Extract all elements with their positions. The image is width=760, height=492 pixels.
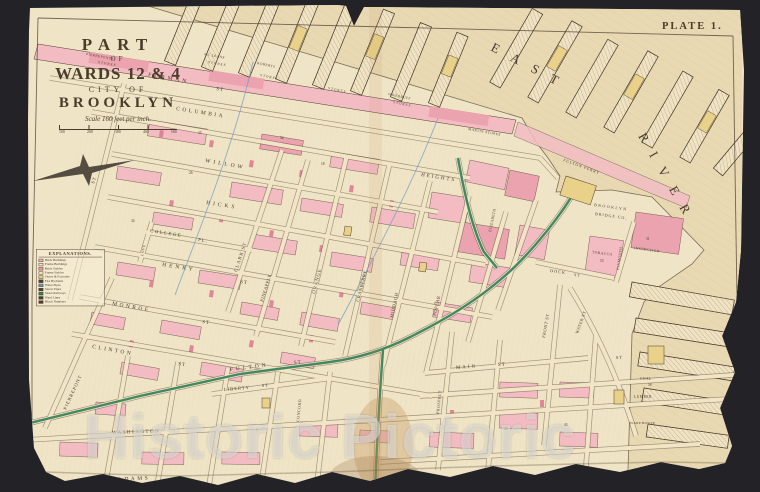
label-coal: COAL — [640, 377, 652, 381]
scale-tick-number: 500 — [171, 130, 177, 134]
legend-symbol — [39, 276, 44, 279]
label-lumber: LUMBER — [634, 395, 652, 399]
historic-map-plate: EASTRIVERFURMANSTCOLUMBIAHEIGHTSWILLOWHI… — [0, 0, 760, 492]
title-cartouche: PART OF WARDS 12 & 4 CITY OF BROOKLYN Sc… — [34, 36, 202, 136]
explanations-legend: EXPLANATIONS. Brick BuildingsFrame Build… — [36, 249, 105, 306]
title-of: OF — [34, 56, 202, 63]
legend-symbol — [39, 296, 44, 299]
legend-title: EXPLANATIONS. — [39, 251, 102, 257]
title-brooklyn: BROOKLYN — [34, 96, 202, 112]
title-city-of: CITY OF — [34, 86, 202, 94]
scale-tick-number: 300 — [115, 130, 121, 134]
legend-symbol — [39, 263, 44, 266]
label-warehouse: WAREHOUSE — [630, 421, 655, 425]
legend-symbol — [39, 259, 44, 262]
legend-symbol — [39, 300, 44, 303]
street-suffix: ST — [616, 355, 623, 360]
legend-symbol — [39, 280, 44, 283]
block-number: 31 — [646, 237, 650, 241]
block-number: 18 — [321, 162, 325, 166]
scale-tick-number: 200 — [87, 130, 93, 134]
street-suffix: ST — [574, 272, 581, 278]
legend-item: Block Numbers — [39, 300, 102, 304]
block-number: 26 — [189, 171, 193, 175]
legend-symbol — [39, 267, 44, 270]
block-number: 52 — [280, 136, 284, 140]
block-number: 34 — [131, 219, 135, 223]
watermark-text: Historic Pictoric — [84, 402, 576, 473]
legend-symbol — [39, 288, 44, 291]
street-suffix: ST — [262, 382, 270, 388]
block-number: 58 — [648, 383, 652, 387]
legend-symbol — [39, 284, 44, 287]
plate-number-label: PLATE 1. — [662, 21, 723, 32]
legend-item-label: Block Numbers — [45, 300, 66, 304]
legend-symbol — [39, 292, 44, 295]
scale-tick-number: 400 — [143, 130, 149, 134]
street-suffix: ST — [294, 360, 302, 366]
scale-bar-numbers: 100200300400500 — [59, 130, 177, 136]
block-number: 53 — [600, 259, 604, 263]
title-wards: WARDS 12 & 4 — [34, 65, 202, 83]
legend-symbol — [39, 271, 44, 274]
title-scale-text: Scale 160 feet per inch. — [34, 116, 202, 123]
scale-tick-number: 100 — [59, 130, 65, 134]
title-part: PART — [34, 36, 202, 54]
street-suffix: ST — [498, 362, 506, 368]
